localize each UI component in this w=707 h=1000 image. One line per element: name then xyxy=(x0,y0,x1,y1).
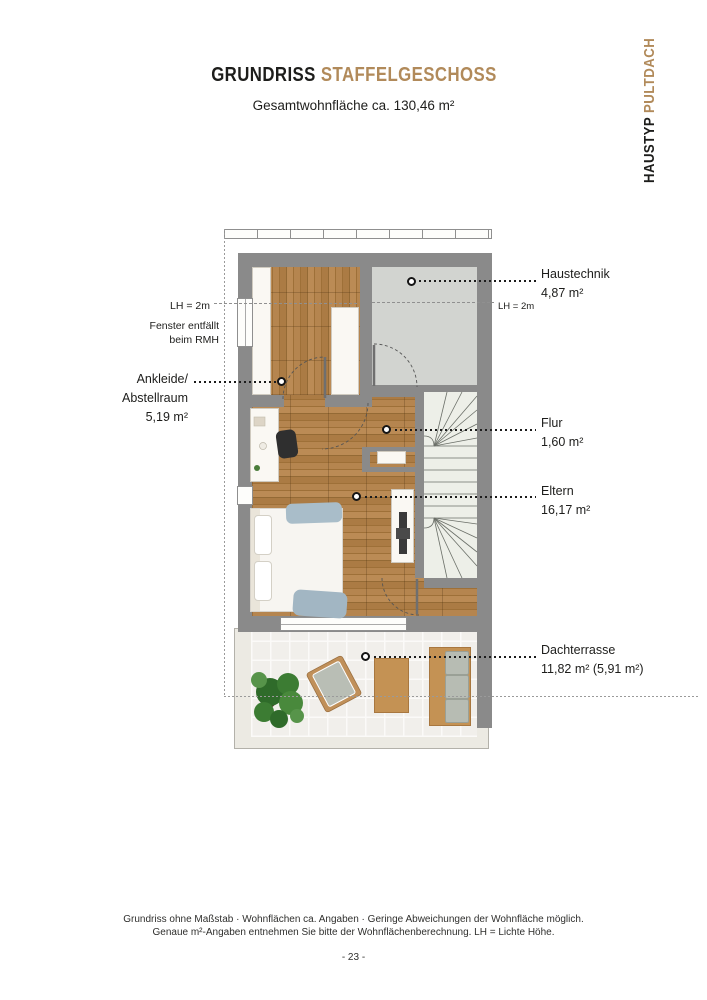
pultdach-text: PULTDACH xyxy=(641,38,658,113)
terrace-table xyxy=(374,658,409,713)
niche-cabinet xyxy=(377,451,406,464)
wall-ankleide-south-b xyxy=(325,395,372,407)
terrace-sliding-door xyxy=(280,617,407,631)
footprint-dashed-horizontal xyxy=(224,696,698,697)
footer-note-line2: Genaue m²-Angaben entnehmen Sie bitte de… xyxy=(0,926,707,939)
lh-line-right xyxy=(372,302,494,303)
label-eltern: Eltern16,17 m² xyxy=(541,482,590,520)
label-lh-left: LH = 2m xyxy=(170,297,210,316)
sofa-cushion-1 xyxy=(445,651,469,675)
stair-floor xyxy=(424,392,477,578)
desk xyxy=(250,408,279,482)
label-fenster-note: Fenster entfälltbeim RMH xyxy=(150,319,219,347)
label-dachterrasse: Dachterrasse11,82 m² (5,91 m²) xyxy=(541,641,644,679)
room-haustechnik-floor xyxy=(372,267,477,385)
lh-line-left xyxy=(214,303,358,304)
wall-terrace-east xyxy=(477,632,492,728)
wall-stair-south xyxy=(424,578,477,588)
page-subtitle: Gesamtwohnfläche ca. 130,46 m² xyxy=(0,98,707,113)
house-type-label: HAUSTYP PULTDACH xyxy=(641,38,658,183)
sofa-cushion-3 xyxy=(445,699,469,723)
footprint-dashed-vertical xyxy=(224,229,225,696)
marker-haustechnik xyxy=(407,277,416,286)
wardrobe-right xyxy=(331,307,359,395)
window-ankleide xyxy=(237,298,253,347)
marker-flur xyxy=(382,425,391,434)
bed-pillow-bottom xyxy=(254,561,272,601)
footer-note-line1: Grundriss ohne Maßstab · Wohnflächen ca.… xyxy=(0,913,707,926)
title-staffelgeschoss: STAFFELGESCHOSS xyxy=(320,64,496,86)
marker-eltern xyxy=(352,492,361,501)
window-eltern xyxy=(237,486,253,505)
floor-plan-page: GRUNDRISS STAFFELGESCHOSS Gesamtwohnfläc… xyxy=(0,0,707,1000)
bed-pillow-top xyxy=(254,515,272,555)
tv-stand xyxy=(396,528,410,539)
marker-ankleide xyxy=(277,377,286,386)
haustyp-text: HAUSTYP xyxy=(641,117,658,183)
leader-haustechnik xyxy=(419,280,536,282)
title-grundriss: GRUNDRISS xyxy=(211,64,316,86)
label-lh-right: LH = 2m xyxy=(498,297,534,316)
wall-stair-west xyxy=(415,392,424,578)
terrace-sofa xyxy=(429,647,471,726)
page-number: - 23 - xyxy=(0,951,707,964)
page-title: GRUNDRISS STAFFELGESCHOSS xyxy=(0,64,707,87)
leader-flur xyxy=(395,429,536,431)
leader-ankleide xyxy=(194,381,276,383)
roof-edge-strip xyxy=(224,229,492,239)
label-ankleide: Ankleide/Abstellraum5,19 m² xyxy=(122,370,188,427)
label-haustechnik: Haustechnik4,87 m² xyxy=(541,265,610,303)
wall-ankleide-south-a xyxy=(252,395,284,407)
bed xyxy=(250,508,343,612)
wardrobe-left xyxy=(252,267,271,395)
leader-dachterrasse xyxy=(374,656,536,658)
leader-eltern xyxy=(365,496,536,498)
tv-sideboard xyxy=(391,489,414,563)
marker-dachterrasse xyxy=(361,652,370,661)
wall-niche-bottom xyxy=(362,467,415,472)
label-flur: Flur1,60 m² xyxy=(541,414,583,452)
